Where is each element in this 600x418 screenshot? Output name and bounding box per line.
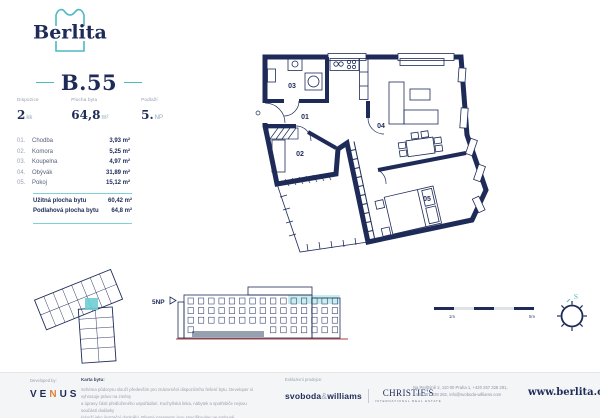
christies-subtitle: INTERNATIONAL REAL ESTATE xyxy=(375,399,442,403)
elevation-outline xyxy=(178,287,340,338)
corridor-hatched-wall xyxy=(349,142,375,241)
dev-logo-part: VE xyxy=(30,389,49,400)
contact-line: +420 257 328 282, info@svoboda-williams.… xyxy=(413,392,508,399)
wardrobe-hatched xyxy=(268,128,298,139)
room-number: 01. xyxy=(17,138,32,144)
room-name: Komora xyxy=(32,149,53,155)
developer-logo: VENUS xyxy=(30,389,79,400)
compass-icon: S xyxy=(552,288,592,334)
room-area: 31,89 m² xyxy=(106,170,130,176)
room-area: 15,12 m² xyxy=(106,180,130,186)
svoboda-williams-logo: svoboda&williams xyxy=(285,391,362,401)
total-row: Užitná plocha bytu 60,42 m² xyxy=(33,198,132,208)
entrance-door xyxy=(256,103,285,123)
disclaimer-line: a úpravy části předloženého uspořádání. … xyxy=(81,400,261,414)
disclaimer-line: (slouží jako ilustrační doplněk). Přesné… xyxy=(81,414,261,418)
outer-walls xyxy=(265,57,486,242)
spec-label: Dispozice xyxy=(17,97,39,102)
broker-label: Exkluzivní prodejce: xyxy=(285,377,442,382)
disclaimer-line: Schéma půdorysu slouží především pro zná… xyxy=(81,386,261,400)
room-row: 01. Chodba 3,93 m² xyxy=(17,138,130,149)
broker-name-part: williams xyxy=(327,391,362,401)
room-name: Obývák xyxy=(32,170,52,176)
unit-id: B.55 xyxy=(61,70,117,95)
footer: Developed by: VENUS Karta bytu: Schéma p… xyxy=(0,372,600,418)
room-label-03: 03 xyxy=(288,83,296,90)
apartment-card: Berlita B.55 Dispozice 2kk Plocha bytu 6… xyxy=(0,0,600,418)
floor-arrow-icon xyxy=(170,297,176,304)
room-name: Pokoj xyxy=(32,180,47,186)
spec-value: 64,8 xyxy=(71,108,100,122)
title-dash-left xyxy=(36,82,54,84)
spec-label: Podlaží xyxy=(141,97,163,102)
north-arrow-icon xyxy=(567,299,570,302)
dev-logo-accent: N xyxy=(49,389,59,400)
website-link[interactable]: www.berlita.cz xyxy=(528,387,600,398)
building-elevation: 5NP xyxy=(148,282,353,348)
scale-end-label: 5m xyxy=(529,314,536,319)
room-label-01: 01 xyxy=(301,114,309,121)
contact-line: Na Perštýně 2, 110 00 Praha 1, +420 257 … xyxy=(413,385,508,392)
room-row: 05. Pokoj 15,12 m² xyxy=(17,180,130,191)
highlighted-unit xyxy=(85,298,98,310)
spec-podlazi: Podlaží 5.NP xyxy=(141,97,163,124)
total-label: Podlahová plocha bytu xyxy=(33,208,99,214)
key-plan-wing-top xyxy=(35,269,123,329)
scale-bar: 1m 5m xyxy=(432,302,547,322)
spec-suffix: kk xyxy=(26,115,32,121)
windows xyxy=(328,54,485,213)
brand-logo: Berlita xyxy=(28,5,112,59)
ground-floor-band xyxy=(192,331,264,337)
area-totals: Užitná plocha bytu 60,42 m² Podlahová pl… xyxy=(33,193,132,224)
room-number: 05. xyxy=(17,180,32,186)
room-label-05: 05 xyxy=(423,196,431,203)
total-value: 64,8 m² xyxy=(111,208,132,214)
spec-plocha: Plocha bytu 64,8m² xyxy=(71,97,108,124)
room-list: 01. Chodba 3,93 m² 02. Komora 5,25 m² 03… xyxy=(17,138,130,191)
room-name: Chodba xyxy=(32,138,53,144)
unit-specs: Dispozice 2kk Plocha bytu 64,8m² Podlaží… xyxy=(17,97,163,124)
doorbell-icon xyxy=(256,111,260,115)
spec-suffix: m² xyxy=(102,115,109,121)
room-row: 02. Komora 5,25 m² xyxy=(17,149,130,160)
spec-label: Plocha bytu xyxy=(71,97,108,102)
room-number: 04. xyxy=(17,170,32,176)
room-area: 4,97 m² xyxy=(109,159,130,165)
contact-info: Na Perštýně 2, 110 00 Praha 1, +420 257 … xyxy=(413,385,508,398)
room-number: 03. xyxy=(17,159,32,165)
dev-logo-part: US xyxy=(60,389,80,400)
logo-divider xyxy=(368,389,369,403)
scale-start-label: 1m xyxy=(449,314,456,319)
developer-column: Developed by: VENUS xyxy=(30,378,79,400)
broker-name-part: svoboda xyxy=(285,391,321,401)
spec-dispozice: Dispozice 2kk xyxy=(17,97,39,124)
total-label: Užitná plocha bytu xyxy=(33,198,86,204)
room-label-02: 02 xyxy=(296,151,304,158)
spec-value: 2 xyxy=(17,108,25,122)
room-row: 03. Koupelna 4,97 m² xyxy=(17,159,130,170)
total-value: 60,42 m² xyxy=(108,198,132,204)
room-area: 3,93 m² xyxy=(109,138,130,144)
key-plan-wing-bottom xyxy=(78,307,116,363)
unit-title: B.55 xyxy=(14,70,164,95)
room-label-04: 04 xyxy=(377,123,385,130)
north-label: S xyxy=(574,292,578,301)
room-area: 5,25 m² xyxy=(109,149,130,155)
terrace-railing xyxy=(277,184,368,252)
building-key-plan xyxy=(28,258,153,366)
room-name: Koupelna xyxy=(32,159,57,165)
room-row: 04. Obývák 31,89 m² xyxy=(17,170,130,181)
title-dash-right xyxy=(124,82,142,84)
floor-label: 5NP xyxy=(152,299,165,306)
room-number: 02. xyxy=(17,149,32,155)
card-label: Karta bytu: xyxy=(81,377,261,382)
spec-value: 5. xyxy=(141,108,154,122)
spec-suffix: NP xyxy=(155,115,163,121)
card-disclaimer-column: Karta bytu: Schéma půdorysu slouží přede… xyxy=(81,377,261,418)
total-row: Podlahová plocha bytu 64,8 m² xyxy=(33,208,132,218)
brand-name: Berlita xyxy=(33,22,107,44)
floor-plan: 01 02 03 04 05 xyxy=(250,42,490,257)
developed-by-label: Developed by: xyxy=(30,378,79,383)
